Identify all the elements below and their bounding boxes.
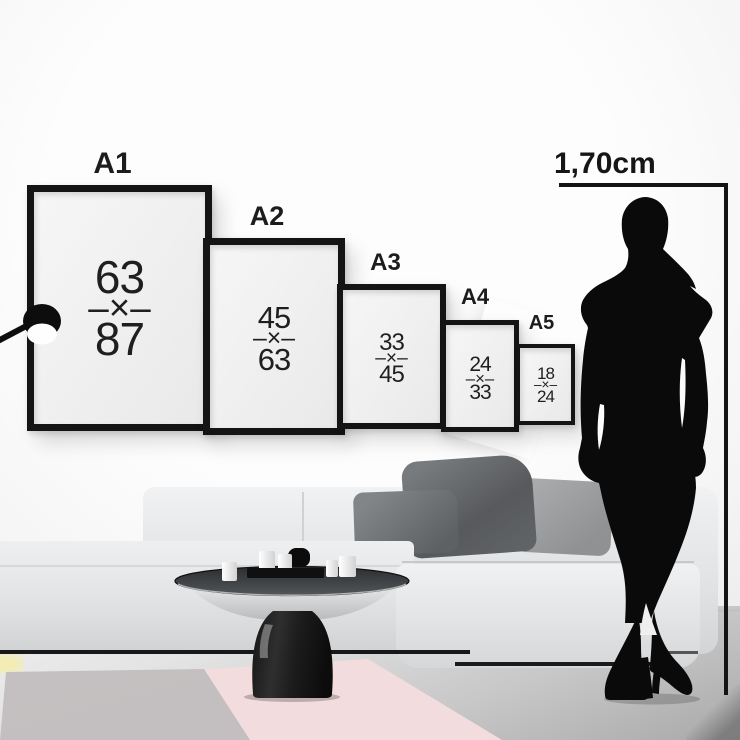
- frame-a2-label: A2: [203, 201, 331, 232]
- person-body: [578, 197, 712, 623]
- frame-a4-dimensions: 24 –×– 33: [466, 357, 494, 400]
- frame-a3-label: A3: [337, 249, 434, 277]
- frame-a3: 33 –×– 45: [337, 284, 446, 429]
- measure-line-horizontal: [559, 183, 728, 187]
- measure-line-vertical: [724, 183, 728, 695]
- wall-lamp-icon: [0, 295, 75, 355]
- table-cup-5: [339, 556, 356, 577]
- frame-a1-label: A1: [27, 147, 198, 181]
- rug-yellow-corner: [0, 654, 24, 674]
- female-silhouette: [568, 190, 732, 708]
- a4-height-value: 33: [466, 385, 494, 401]
- a2-height-value: 63: [253, 349, 295, 372]
- frame-a4: 24 –×– 33: [441, 320, 519, 432]
- frame-a3-dimensions: 33 –×– 45: [375, 334, 408, 384]
- frame-a5: 18 –×– 24: [516, 344, 575, 425]
- a3-height-value: 45: [375, 366, 408, 384]
- table-cup-4: [326, 560, 338, 577]
- floor-corner-shadow: [686, 684, 740, 740]
- table-cup-1: [222, 562, 237, 581]
- frame-a4-label: A4: [441, 284, 509, 310]
- a1-height-value: 87: [88, 322, 150, 356]
- person-height-label: 1,70cm: [554, 147, 730, 181]
- table-book: [247, 568, 324, 578]
- frame-a2-dimensions: 45 –×– 63: [253, 307, 295, 371]
- frame-a2: 45 –×– 63: [203, 238, 345, 435]
- frame-a5-dimensions: 18 –×– 24: [534, 368, 557, 403]
- person-shoe-right-heel: [652, 670, 661, 694]
- frame-a5-label: A5: [516, 312, 567, 335]
- poster-size-guide-scene: 63 –×– 87 A1 45 –×– 63 A2 33 –×– 45 A3 2…: [0, 0, 740, 740]
- frame-a1-dimensions: 63 –×– 87: [88, 260, 150, 355]
- coffee-table: [160, 535, 420, 710]
- a5-height-value: 24: [534, 391, 557, 404]
